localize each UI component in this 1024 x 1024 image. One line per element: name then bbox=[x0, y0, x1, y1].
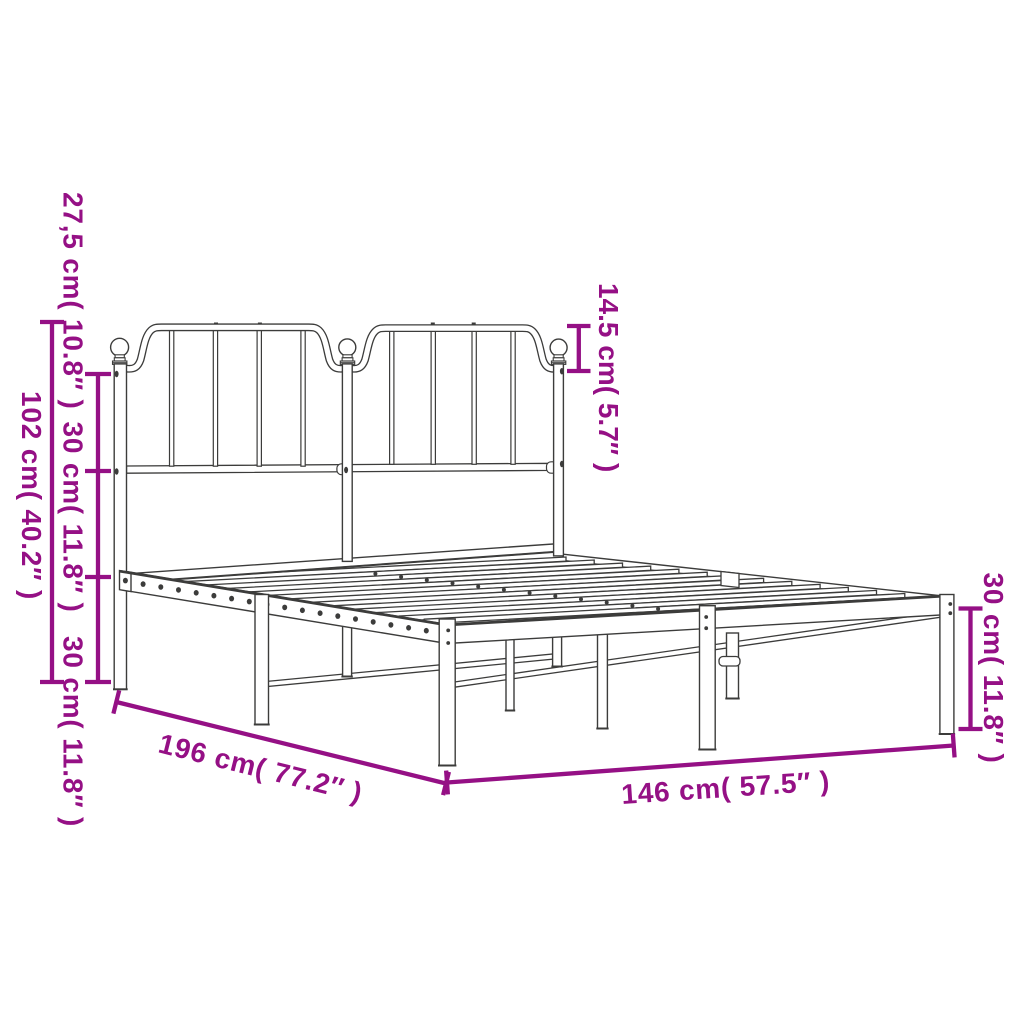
svg-text:30 cm( 11.8″ ): 30 cm( 11.8″ ) bbox=[58, 636, 89, 827]
svg-text:30 cm( 11.8″ ): 30 cm( 11.8″ ) bbox=[58, 422, 89, 613]
svg-text:14.5 cm( 5.7″ ): 14.5 cm( 5.7″ ) bbox=[593, 283, 624, 472]
svg-text:27,5 cm( 10.8″ ): 27,5 cm( 10.8″ ) bbox=[58, 192, 89, 410]
svg-text:102 cm( 40.2″ ): 102 cm( 40.2″ ) bbox=[16, 391, 47, 600]
svg-text:30 cm( 11.8″ ): 30 cm( 11.8″ ) bbox=[978, 573, 1009, 764]
